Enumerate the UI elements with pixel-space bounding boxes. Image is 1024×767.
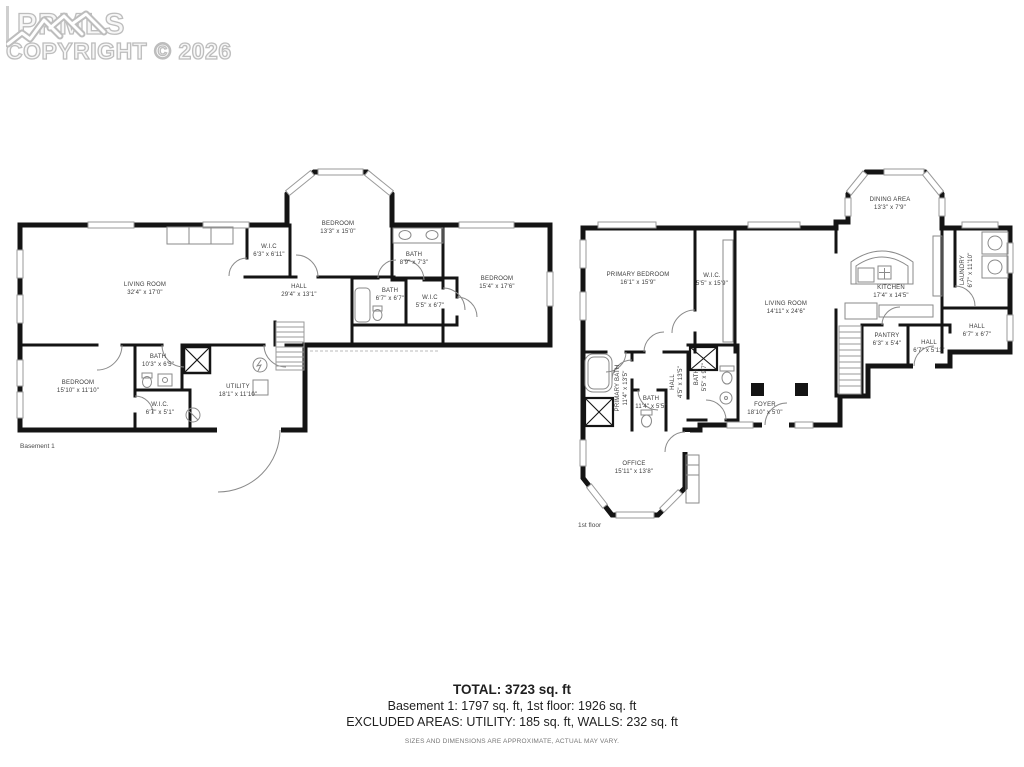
room-label-basement-living-room: LIVING ROOM 32'4" x 17'0" (124, 281, 166, 297)
room-label-basement-hall: HALL 29'4" x 13'1" (281, 283, 317, 299)
room-label-basement-bath-lower: BATH 10'3" x 6'5" (142, 353, 174, 369)
room-label-first-primary-bedroom: PRIMARY BEDROOM 16'1" x 15'9" (607, 271, 670, 287)
basement-entry-door (217, 424, 281, 492)
room-label-basement-utility: UTILITY 18'1" x 11'10" (219, 383, 258, 399)
floor-areas: Basement 1: 1797 sq. ft, 1st floor: 1926… (0, 699, 1024, 713)
room-label-first-hall-mid: HALL 6'7" x 5'11" (913, 339, 945, 355)
room-label-basement-wic-mid: W.I.C 5'5" x 6'7" (416, 294, 444, 310)
disclaimer: SIZES AND DIMENSIONS ARE APPROXIMATE, AC… (0, 738, 1024, 745)
room-label-basement-bath-upper: BATH 8'9" x 7'3" (400, 251, 428, 267)
total-area: TOTAL: 3723 sq. ft (0, 682, 1024, 697)
room-label-first-kitchen: KITCHEN 17'4" x 14'5" (873, 284, 909, 300)
area-summary: TOTAL: 3723 sq. ft Basement 1: 1797 sq. … (0, 682, 1024, 745)
basement-floorplan (17, 169, 553, 492)
room-label-basement-wic-lower: W.I.C. 6'7" x 5'1" (146, 401, 174, 417)
basement-interior-walls (20, 225, 457, 430)
room-label-basement-wic-upper: W.I.C 6'3" x 6'11" (253, 243, 285, 259)
room-label-first-bath-foyer: BATH 5'5" x 9'7" (693, 363, 709, 391)
first-exterior-door-gaps (680, 361, 935, 452)
room-label-basement-bath-mid: BATH 6'7" x 6'7" (376, 287, 404, 303)
basement-exterior-walls (20, 172, 550, 430)
room-label-first-pantry: PANTRY 6'3" x 5'4" (873, 332, 901, 348)
room-label-basement-bedroom-bay: BEDROOM 13'3" x 15'0" (320, 220, 356, 236)
room-label-first-wic: W.I.C. 5'5" x 15'9" (696, 272, 728, 288)
room-label-first-hall-lower: HALL 4'5" x 13'5" (669, 366, 685, 398)
first-floor-name: 1st floor (578, 522, 601, 529)
room-label-basement-bedroom-right: BEDROOM 15'4" x 17'6" (479, 275, 515, 291)
room-label-first-living-room: LIVING ROOM 14'11" x 24'6" (765, 300, 807, 316)
room-label-first-primary-bath: PRIMARY BATH 11'4" x 13'5" (614, 365, 630, 412)
room-label-basement-bedroom-lower: BEDROOM 15'10" x 11'10" (57, 379, 99, 395)
room-label-first-dining-area: DINING AREA 13'3" x 7'9" (870, 196, 911, 212)
first-columns (751, 383, 808, 396)
watermark: PPMLS COPYRIGHT © 2026 (6, 6, 266, 65)
room-label-first-laundry: LAUNDRY 6'7" x 11'10" (959, 252, 975, 287)
basement-floor-name: Basement 1 (20, 443, 55, 450)
room-label-first-hall-right: HALL 6'7" x 6'7" (963, 323, 991, 339)
room-label-first-office: OFFICE 15'11" x 13'8" (615, 460, 654, 476)
first-stairs (839, 326, 861, 394)
room-label-first-foyer: FOYER 18'10" x 5'0" (747, 401, 783, 417)
excluded-areas: EXCLUDED AREAS: UTILITY: 185 sq. ft, WAL… (0, 715, 1024, 729)
mountains-icon (6, 6, 108, 48)
basement-shower-chase (184, 347, 210, 373)
floorplan-drawing (0, 0, 1024, 767)
room-label-first-bath-small: BATH 11'4" x 5'5" (635, 395, 667, 411)
floorplan-page: PPMLS COPYRIGHT © 2026 LIVING ROOM 32'4"… (0, 0, 1024, 767)
